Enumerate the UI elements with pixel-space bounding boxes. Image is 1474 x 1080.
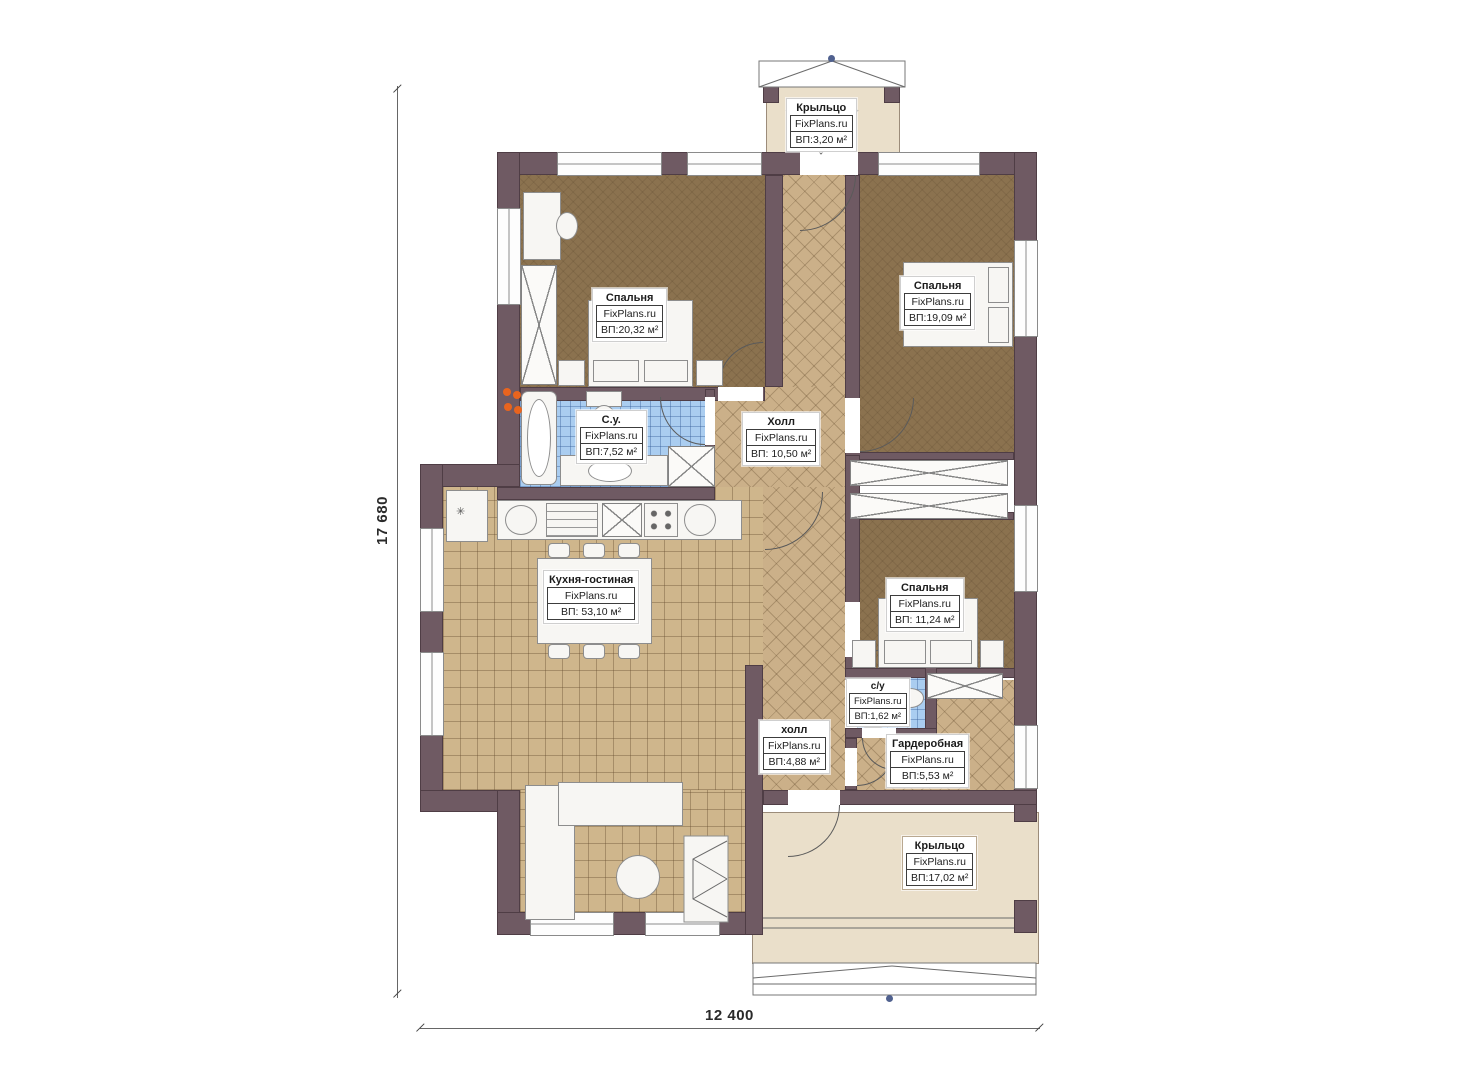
room-label-wardrobe: Гардеробная FixPlans.ru ВП:5,53 м²: [886, 734, 969, 788]
window: [497, 208, 521, 305]
shower: [668, 446, 715, 487]
window: [1014, 505, 1038, 592]
room-name: с/у: [849, 680, 907, 694]
kitchen-corner-cabinet: [446, 490, 488, 542]
window: [557, 152, 662, 176]
kitchen-sink-round: [684, 504, 716, 536]
room-name: Спальня: [890, 581, 960, 596]
vent-icon: ✳: [456, 505, 465, 518]
roof-marker: [886, 995, 893, 1002]
room-label-wc: с/у FixPlans.ru ВП:1,62 м²: [846, 678, 910, 727]
room-area: ВП:5,53 м²: [890, 767, 965, 784]
nightstand: [558, 360, 585, 386]
room-area: ВП:1,62 м²: [849, 708, 907, 724]
window: [420, 528, 444, 612]
room-area: ВП: 10,50 м²: [746, 445, 816, 462]
wall: [420, 464, 443, 812]
room-brand: FixPlans.ru: [596, 305, 663, 322]
door-opening: [705, 397, 715, 445]
room-brand: FixPlans.ru: [906, 853, 973, 870]
wardrobe-cabinet: [927, 673, 1003, 699]
dimension-label-left: 17 680: [374, 496, 391, 545]
chair: [583, 543, 605, 558]
room-label-bedroom2: Спальня FixPlans.ru ВП:19,09 м²: [900, 276, 975, 330]
nightstand: [696, 360, 723, 386]
nightstand: [980, 640, 1004, 668]
chair: [548, 543, 570, 558]
door-opening: [718, 387, 763, 401]
room-area: ВП:3,20 м²: [790, 131, 853, 148]
door-opening: [845, 398, 860, 453]
room-area: ВП:19,09 м²: [904, 309, 971, 326]
wall: [765, 175, 783, 387]
floor-plan-canvas: ✳ Крыльцо FixPlans.ru ВП:3,20 м: [0, 0, 1474, 1080]
room-name: Кухня-гостиная: [547, 573, 635, 588]
bed-pillow: [988, 307, 1009, 343]
roof-outline-bottom: [752, 962, 1037, 998]
room-name: холл: [763, 723, 826, 738]
room-name: Спальня: [904, 279, 971, 294]
wardrobe-cabinet: [521, 265, 557, 385]
roof-outline-top: [758, 58, 906, 88]
wall: [845, 452, 1014, 460]
room-name: Спальня: [596, 291, 663, 306]
fridge: [546, 503, 598, 537]
room-brand: FixPlans.ru: [580, 427, 643, 444]
room-name: Холл: [746, 415, 816, 430]
bed-pillow: [644, 360, 688, 382]
room-brand: FixPlans.ru: [790, 115, 853, 132]
room-brand: FixPlans.ru: [890, 595, 960, 612]
fireplace: [683, 835, 729, 923]
dimension-label-bottom: 12 400: [705, 1007, 754, 1024]
room-name: Крыльцо: [906, 839, 973, 854]
bathtub-basin: [527, 399, 551, 477]
kitchen-sink: [505, 505, 537, 535]
nightstand: [852, 640, 876, 668]
room-label-hall: Холл FixPlans.ru ВП: 10,50 м²: [742, 412, 820, 466]
room-brand: FixPlans.ru: [904, 293, 971, 310]
radiator-icon: [503, 388, 511, 396]
bed-pillow: [593, 360, 639, 382]
chair: [583, 644, 605, 659]
window: [687, 152, 762, 176]
room-label-kitchen: Кухня-гостиная FixPlans.ru ВП: 53,10 м²: [543, 570, 639, 624]
wall: [745, 665, 763, 935]
room-label-bathroom: С.у. FixPlans.ru ВП:7,52 м²: [576, 410, 647, 464]
room-label-porch-top: Крыльцо FixPlans.ru ВП:3,20 м²: [786, 98, 857, 152]
room-brand: FixPlans.ru: [746, 429, 816, 446]
room-name: Крыльцо: [790, 101, 853, 116]
cabinet: [602, 503, 642, 537]
room-brand: FixPlans.ru: [849, 693, 907, 709]
wall: [1014, 900, 1037, 933]
room-area: ВП:20,32 м²: [596, 321, 663, 338]
chair: [548, 644, 570, 659]
bed-pillow: [930, 640, 972, 664]
dimension-line-bottom: [420, 1028, 1040, 1029]
window: [1014, 240, 1038, 337]
room-label-hall2: холл FixPlans.ru ВП:4,88 м²: [759, 720, 830, 774]
room-area: ВП:4,88 м²: [763, 753, 826, 770]
room-area: ВП: 53,10 м²: [547, 603, 635, 620]
bed-pillow: [884, 640, 926, 664]
sofa: [558, 782, 683, 826]
room-brand: FixPlans.ru: [890, 751, 965, 768]
stove: [644, 503, 678, 537]
room-label-porch-bottom: Крыльцо FixPlans.ru ВП:17,02 м²: [902, 836, 977, 890]
wall: [497, 487, 715, 500]
door-opening: [788, 790, 840, 805]
window: [420, 652, 444, 736]
bed-pillow: [988, 267, 1009, 303]
roof-marker: [828, 55, 835, 62]
window: [1014, 725, 1038, 789]
door-opening: [845, 748, 857, 786]
chair: [556, 212, 578, 240]
chair: [618, 543, 640, 558]
room-brand: FixPlans.ru: [547, 587, 635, 604]
room-brand: FixPlans.ru: [763, 737, 826, 754]
dimension-line-left: [397, 86, 398, 998]
wardrobe-cabinet: [850, 493, 1008, 519]
coffee-table: [616, 855, 660, 899]
room-area: ВП:17,02 м²: [906, 869, 973, 886]
wall: [497, 152, 520, 487]
room-label-bedroom3: Спальня FixPlans.ru ВП: 11,24 м²: [886, 578, 964, 632]
chair: [618, 644, 640, 659]
room-area: ВП: 11,24 м²: [890, 611, 960, 628]
room-label-bedroom1: Спальня FixPlans.ru ВП:20,32 м²: [592, 288, 667, 342]
room-name: С.у.: [580, 413, 643, 428]
room-area: ВП:7,52 м²: [580, 443, 643, 460]
wardrobe-cabinet: [850, 460, 1008, 486]
room-name: Гардеробная: [890, 737, 965, 752]
